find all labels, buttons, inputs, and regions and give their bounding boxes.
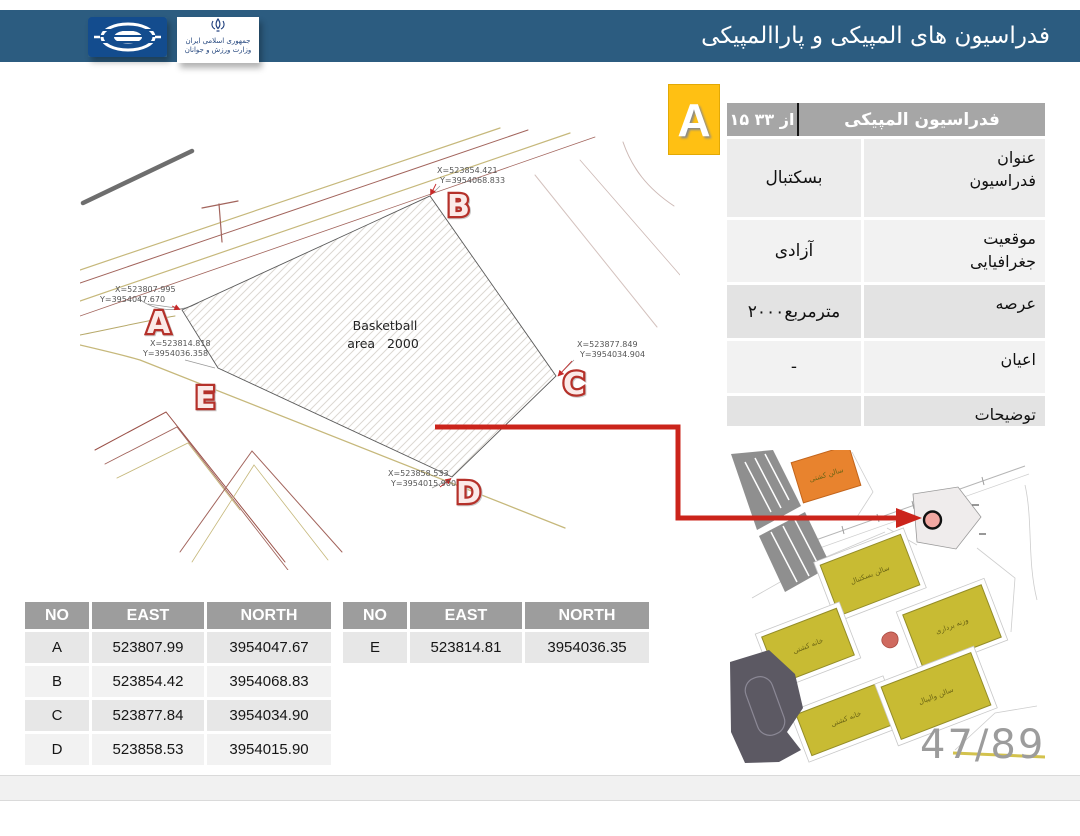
table-cell: D (25, 734, 89, 765)
table-row: D523858.533954015.90 (25, 734, 331, 765)
info-row: - اعیان (727, 341, 1045, 393)
coord-label-d-x: X=523858.533 (388, 469, 449, 478)
info-row-label: اعیان (861, 341, 1045, 393)
site-marker-circle (924, 512, 941, 529)
info-row-label: عرصه (861, 285, 1045, 338)
coord-table-head: NO EAST NORTH (343, 602, 649, 629)
table-header-cell: NORTH (525, 602, 649, 629)
page-number: 47/89 (920, 722, 1045, 768)
vertex-letter-a: A (147, 306, 171, 341)
table-cell: C (25, 700, 89, 731)
coord-label-c-x: X=523877.849 (577, 340, 638, 349)
table-cell: 523854.42 (92, 666, 204, 697)
table-cell: 3954034.90 (207, 700, 331, 731)
coord-label-e-y: Y=3954036.358 (142, 349, 208, 358)
table-cell: E (343, 632, 407, 663)
vertex-letter-d: D (456, 476, 481, 511)
olympic-logo-icon (88, 17, 167, 57)
coord-table-body: A523807.993954047.67B523854.423954068.83… (25, 632, 331, 765)
info-row: آزادی موقعیت جغرافیایی (727, 220, 1045, 282)
info-header-counter: ۱۵ از ۳۳ (727, 103, 797, 136)
ministry-logo-line1: جمهوری اسلامی ایران (186, 37, 251, 46)
coord-label-b-x: X=523854.421 (437, 166, 498, 175)
table-header-cell: NORTH (207, 602, 331, 629)
table-cell: 523877.84 (92, 700, 204, 731)
page-title: فدراسیون های المپیکی و پاراالمپیکی (701, 23, 1050, 49)
info-row-value: ۲۰۰۰مترمربع (727, 285, 861, 338)
table-cell: 3954047.67 (207, 632, 331, 663)
info-row-label: موقعیت جغرافیایی (861, 220, 1045, 282)
table-cell: A (25, 632, 89, 663)
info-row-label: عنوان فدراسیون (861, 139, 1045, 217)
coord-label-a-x: X=523807.995 (115, 285, 176, 294)
site-map: سالن کشتی سالن بسکتبال وزنه برداری خانه … (727, 450, 1045, 765)
table-cell: 3954068.83 (207, 666, 331, 697)
vertex-letter-b: B (447, 189, 470, 224)
table-cell: 523858.53 (92, 734, 204, 765)
table-header-cell: NO (343, 602, 407, 629)
coord-label-d-y: Y=3954015.900 (390, 479, 456, 488)
info-row-label: توضیحات (861, 396, 1045, 426)
info-row-value: - (727, 341, 861, 393)
table-header-cell: NO (25, 602, 89, 629)
info-table: ۱۵ از ۳۳ فدراسیون المپیکی بسکتبال عنوان … (727, 103, 1045, 426)
table-cell: B (25, 666, 89, 697)
vertex-letter-c: C (563, 367, 585, 402)
info-table-header: ۱۵ از ۳۳ فدراسیون المپیکی (727, 103, 1045, 136)
table-row: B523854.423954068.83 (25, 666, 331, 697)
info-row-value: آزادی (727, 220, 861, 282)
coord-label-a-y: Y=3954047.670 (99, 295, 165, 304)
table-header-cell: EAST (92, 602, 204, 629)
table-cell: 523807.99 (92, 632, 204, 663)
olympic-logo (88, 17, 167, 57)
coord-table-body: E523814.813954036.35 (343, 632, 649, 663)
coord-label-c-y: Y=3954034.904 (579, 350, 645, 359)
coord-table-abcd: NO EAST NORTH A523807.993954047.67B52385… (22, 599, 334, 768)
svg-text:area 2000: area 2000 (347, 336, 419, 351)
map-red-feature (882, 632, 898, 648)
footer-bar (0, 775, 1080, 801)
iran-emblem-icon (203, 17, 233, 37)
table-row: E523814.813954036.35 (343, 632, 649, 663)
info-row-value: بسکتبال (727, 139, 861, 217)
coord-table-head: NO EAST NORTH (25, 602, 331, 629)
ministry-logo: جمهوری اسلامی ایران وزارت ورزش و جوانان (177, 17, 259, 63)
table-cell: 3954036.35 (525, 632, 649, 663)
info-row-value (727, 396, 861, 426)
svg-text:Basketball: Basketball (353, 318, 418, 333)
map-building-orange: سالن کشتی (791, 450, 861, 503)
table-row: A523807.993954047.67 (25, 632, 331, 663)
vertex-letter-e: E (195, 381, 216, 416)
ministry-logo-line2: وزارت ورزش و جوانان (185, 46, 252, 55)
info-row: ۲۰۰۰مترمربع عرصه (727, 285, 1045, 338)
info-row: توضیحات (727, 396, 1045, 426)
section-badge-letter: A (677, 93, 710, 147)
table-cell: 3954015.90 (207, 734, 331, 765)
info-header-title: فدراسیون المپیکی (799, 103, 1045, 136)
cad-drawing: X=523807.995 Y=3954047.670 X=523854.421 … (80, 120, 680, 570)
coord-table-e: NO EAST NORTH E523814.813954036.35 (340, 599, 652, 666)
slide: فدراسیون های المپیکی و پاراالمپیکی جمهور… (0, 0, 1080, 836)
table-header-cell: EAST (410, 602, 522, 629)
info-row: بسکتبال عنوان فدراسیون (727, 139, 1045, 217)
table-cell: 523814.81 (410, 632, 522, 663)
table-row: C523877.843954034.90 (25, 700, 331, 731)
coord-label-b-y: Y=3954068.833 (439, 176, 505, 185)
